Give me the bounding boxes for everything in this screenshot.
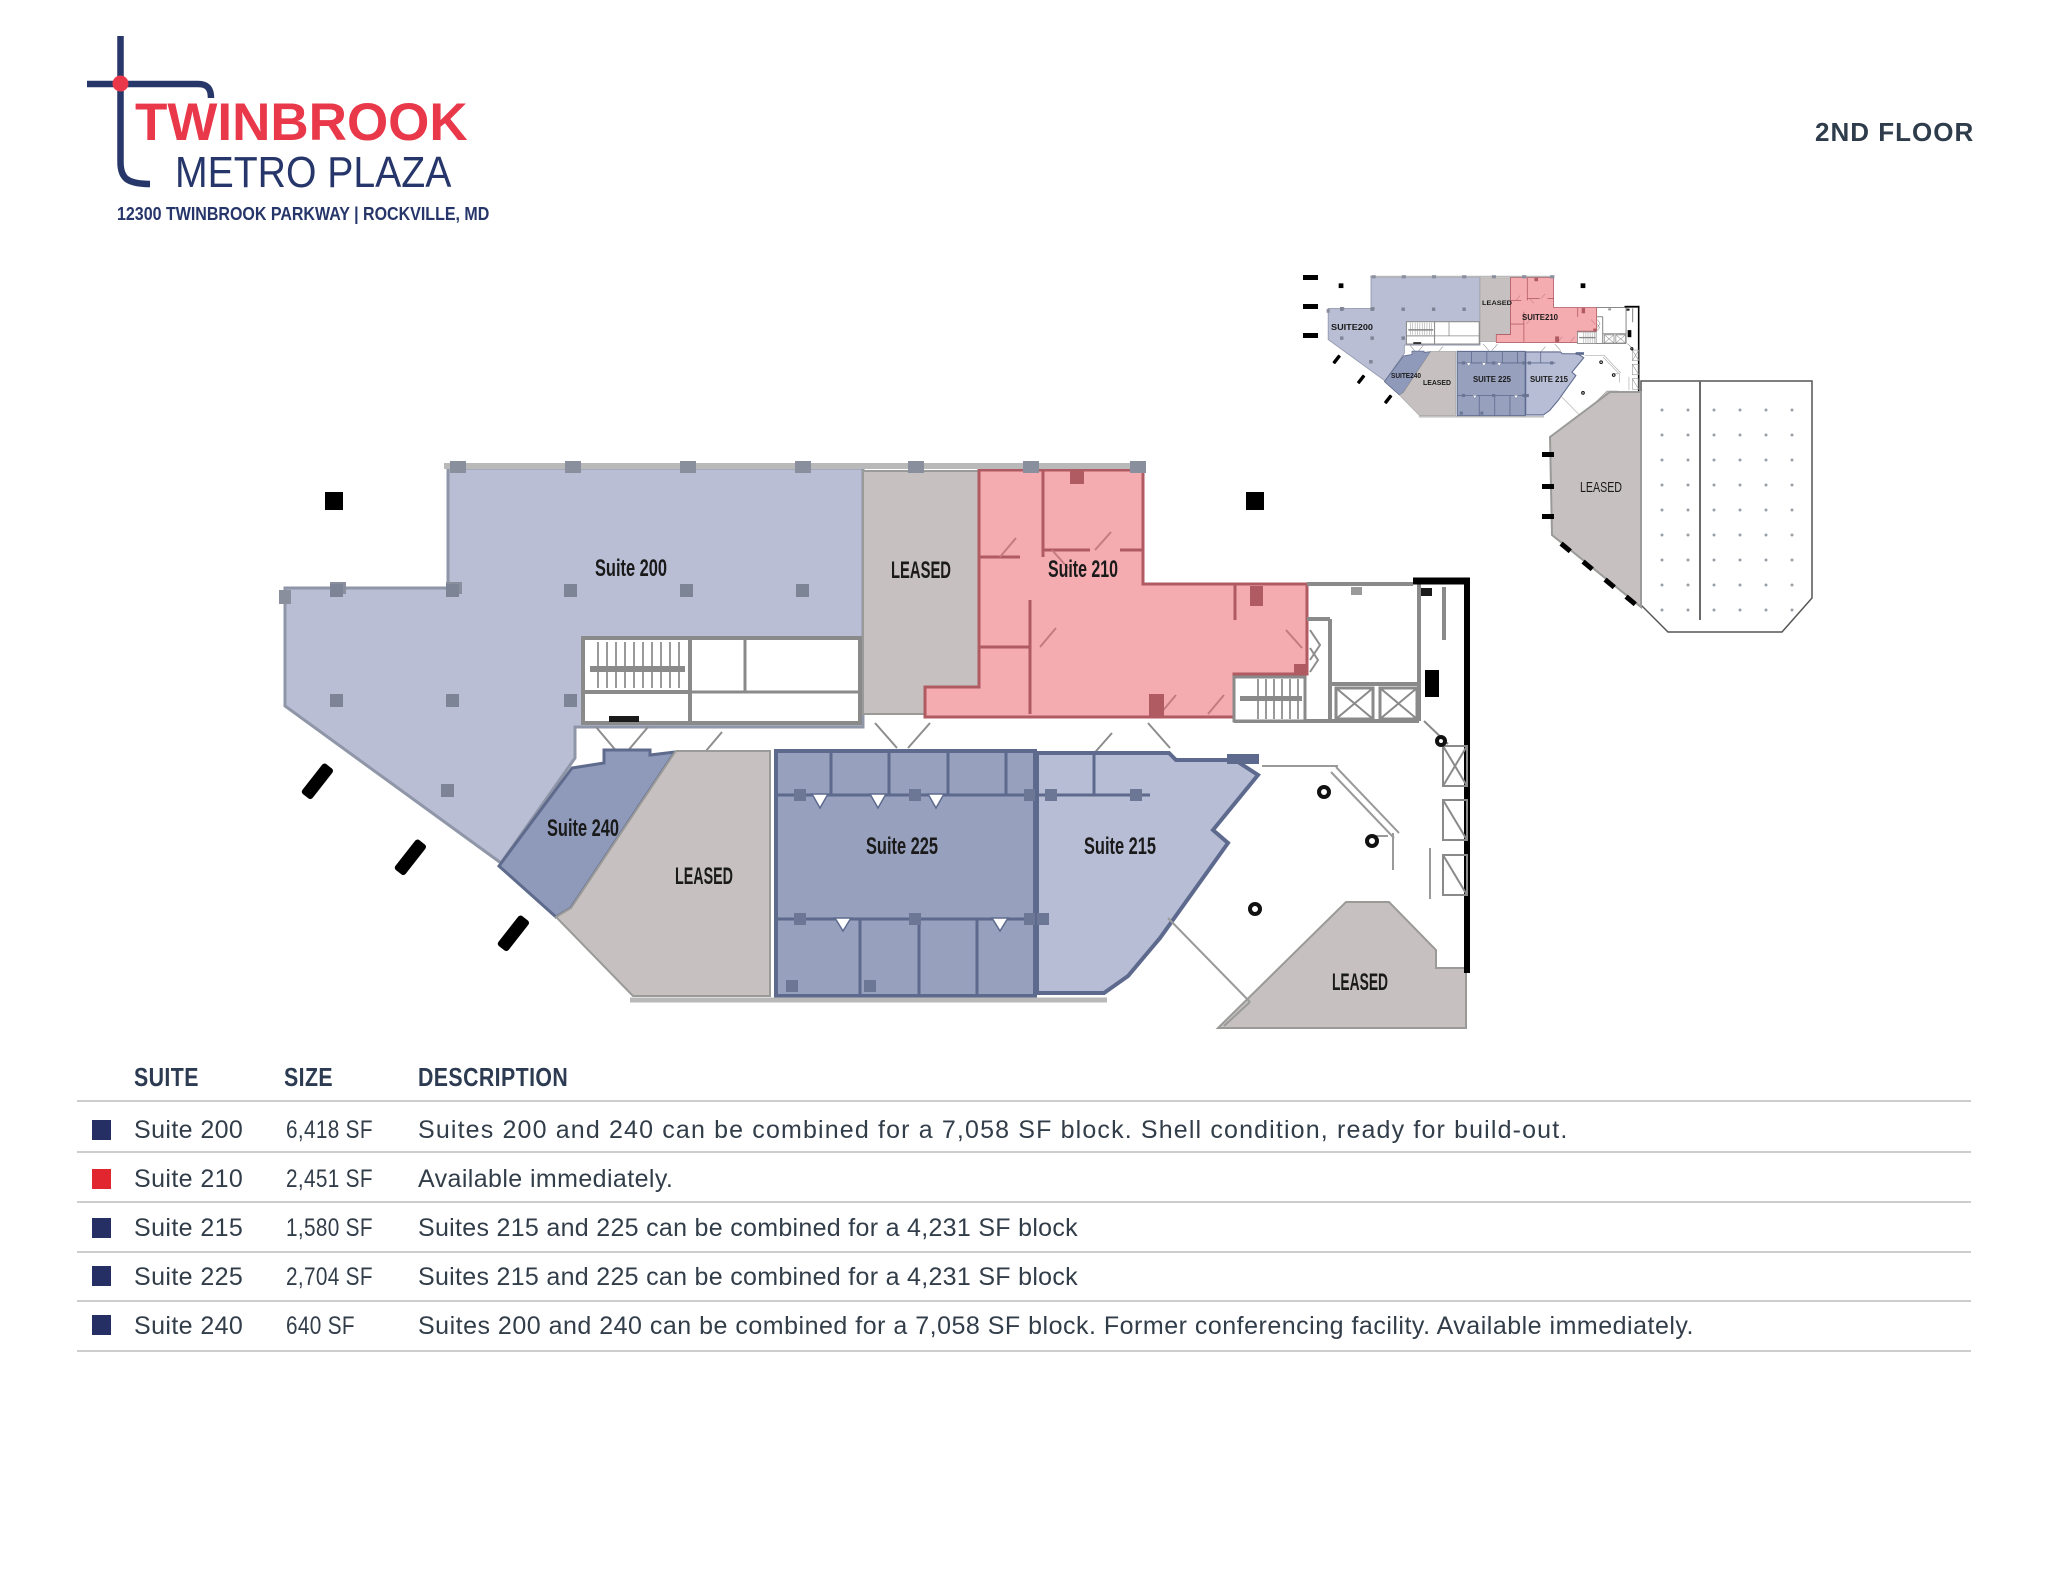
svg-text:SUITE210: SUITE210 xyxy=(1522,313,1559,322)
svg-text:SUITE 225: SUITE 225 xyxy=(1473,375,1512,384)
svg-text:SUITE240: SUITE240 xyxy=(1391,373,1421,380)
svg-text:LEASED: LEASED xyxy=(1332,969,1388,996)
svg-text:Suite 210: Suite 210 xyxy=(1048,556,1118,583)
svg-text:SUITE 215: SUITE 215 xyxy=(1530,375,1569,384)
svg-text:Suite 200: Suite 200 xyxy=(595,555,667,582)
svg-text:LEASED: LEASED xyxy=(1423,380,1451,387)
svg-text:Suite 225: Suite 225 xyxy=(866,833,938,860)
svg-text:Suite 240: Suite 240 xyxy=(547,815,619,842)
svg-text:LEASED: LEASED xyxy=(891,557,951,584)
svg-text:LEASED: LEASED xyxy=(1482,301,1513,307)
svg-text:SUITE200: SUITE200 xyxy=(1331,323,1374,332)
svg-text:LEASED: LEASED xyxy=(1580,479,1622,496)
svg-text:Suite 215: Suite 215 xyxy=(1084,833,1156,860)
svg-text:LEASED: LEASED xyxy=(675,863,733,890)
